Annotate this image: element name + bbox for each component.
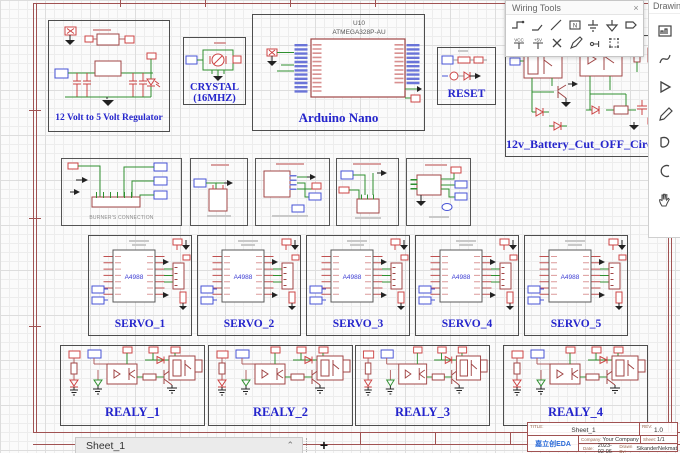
title-label: TITLE:	[530, 424, 544, 429]
pen-icon[interactable]	[567, 34, 584, 51]
easyeda-logo: 嘉立创EDA	[528, 436, 579, 452]
frame-tick	[375, 0, 376, 7]
section-label: SERVO_5	[525, 318, 627, 330]
relay-schematic-drawing	[209, 346, 351, 404]
section-servo-4[interactable]: A4988 SERVO_4	[415, 235, 519, 336]
relay-schematic-drawing	[356, 346, 488, 404]
bezier-curve-icon[interactable]	[656, 50, 674, 68]
section-sensor-module-3[interactable]	[406, 158, 471, 226]
add-sheet-button[interactable]: +	[312, 437, 336, 453]
section-label: Arduino Nano	[253, 111, 424, 125]
relay-schematic-drawing	[61, 346, 203, 404]
drawing-tools-panel[interactable]: Drawing Tools	[648, 0, 680, 238]
section-relay-4[interactable]: REALY_4	[503, 345, 648, 426]
section-servo-1[interactable]: A4988 SERVO_1	[88, 235, 192, 336]
no-connect-icon[interactable]	[548, 34, 565, 51]
frame-tick	[29, 326, 41, 327]
pan-hand-icon[interactable]	[656, 190, 674, 208]
section-servo-2[interactable]: A4988 SERVO_2	[197, 235, 301, 336]
drawn-by-label: Drawn By:	[617, 443, 633, 453]
arduino-schematic-drawing: U10 ATMEGA328P-AU	[253, 15, 422, 107]
frame-tick	[29, 110, 41, 111]
frame-tick	[360, 432, 361, 445]
date-value: 2023-02-06	[598, 442, 615, 453]
sensor-module-2-drawing	[337, 159, 396, 221]
frame-tick	[205, 0, 206, 7]
closed-shape-icon[interactable]	[656, 134, 674, 152]
sheet-tab-label[interactable]: Sheet_1	[76, 440, 286, 452]
section-relay-1[interactable]: REALY_1	[60, 345, 205, 426]
driver-chip-label: A4988	[452, 274, 471, 281]
section-label: REALY_3	[356, 406, 489, 420]
sensor-module-1-drawing	[256, 159, 327, 221]
wire-icon[interactable]	[510, 16, 527, 33]
section-reset[interactable]: RESET	[437, 47, 496, 105]
signal-ground-icon[interactable]	[604, 16, 621, 33]
servo-schematic-drawing: A4988	[416, 236, 517, 316]
chevron-up-icon[interactable]: ⌃	[286, 440, 302, 451]
section-label: 12v_Battery_Cut_OFF_Circuit	[506, 138, 660, 151]
driver-chip-label: A4988	[234, 274, 253, 281]
section-label: RESET	[438, 88, 495, 100]
servo-schematic-drawing: A4988	[89, 236, 190, 316]
section-burners-connection[interactable]: BURNER'S CONNECTION	[61, 158, 182, 226]
section-servo-5[interactable]: A4988 SERVO_5	[524, 235, 628, 336]
pencil-icon[interactable]	[656, 106, 674, 124]
vcc-flag-icon[interactable]: VCC	[510, 34, 527, 51]
section-relay-2[interactable]: REALY_2	[208, 345, 353, 426]
drawn-by-value: SikanderNekmat	[636, 445, 677, 452]
section-label: REALY_1	[61, 406, 204, 420]
svg-text:+5V: +5V	[533, 37, 541, 42]
section-label: REALY_2	[209, 406, 352, 420]
relay-schematic-drawing	[504, 346, 646, 404]
sheet-tab[interactable]: Sheet_1 ⌃	[75, 437, 303, 453]
frame-tick	[510, 432, 511, 445]
wire-group-icon[interactable]	[605, 34, 622, 51]
title-block-rev-cell: REV: 1.0	[639, 423, 677, 435]
frame-tick	[435, 432, 436, 445]
section-sensor-module-1[interactable]	[255, 158, 330, 226]
section-label: SERVO_2	[198, 318, 300, 330]
wiring-tools-header[interactable]: Wiring Tools ×	[506, 1, 643, 15]
wiring-tools-title: Wiring Tools	[506, 3, 629, 13]
regulator-schematic-drawing	[49, 21, 168, 109]
driver-chip-label: A4988	[125, 274, 144, 281]
servo-schematic-drawing: A4988	[307, 236, 408, 316]
net-port-icon[interactable]	[622, 16, 639, 33]
frame-tick	[120, 0, 121, 7]
section-crystal[interactable]: CRYSTAL (16MHZ)	[183, 37, 246, 105]
crystal-label-line1: CRYSTAL	[190, 82, 239, 93]
drawing-tools-title: Drawing Tools	[649, 0, 680, 14]
line-icon[interactable]	[547, 16, 564, 33]
section-battery-connector[interactable]	[190, 158, 248, 226]
net-label-icon[interactable]: N	[566, 16, 583, 33]
section-label: SERVO_4	[416, 318, 518, 330]
title-block[interactable]: TITLE: Sheet_1 REV: 1.0 嘉立创EDA Company: …	[527, 422, 678, 452]
section-label: REALY_4	[504, 406, 647, 420]
section-label: CRYSTAL (16MHZ)	[184, 82, 245, 105]
driver-chip-label: A4988	[561, 274, 580, 281]
wiring-tools-palette[interactable]: Wiring Tools × N VCC +5V	[505, 0, 644, 57]
section-label: SERVO_3	[307, 318, 409, 330]
rev-label: REV:	[642, 424, 652, 429]
ground-icon[interactable]	[585, 16, 602, 33]
sheet-value: 1/1	[657, 436, 665, 443]
servo-schematic-drawing: A4988	[198, 236, 299, 316]
svg-text:VCC: VCC	[514, 37, 524, 42]
chip-part-number: ATMEGA328P-AU	[332, 29, 386, 36]
plus5v-flag-icon[interactable]: +5V	[529, 34, 546, 51]
sheet-count-cell: Sheet: 1/1	[640, 436, 677, 443]
section-voltage-regulator[interactable]: 12 Volt to 5 Volt Regulator	[48, 20, 170, 132]
section-sensor-module-2[interactable]	[336, 158, 399, 226]
section-label: 12 Volt to 5 Volt Regulator	[49, 113, 169, 123]
section-arduino-nano[interactable]: U10 ATMEGA328P-AU Arduino Nano	[252, 14, 425, 131]
chip-refdes: U10	[353, 20, 365, 27]
arrow-icon[interactable]	[656, 78, 674, 96]
burners-schematic-drawing	[62, 159, 180, 211]
servo-schematic-drawing: A4988	[525, 236, 626, 316]
date-label: Date:	[581, 445, 595, 451]
schematic-canvas[interactable]: 12 Volt to 5 Volt Regulator CRYSTAL (16M…	[0, 0, 680, 453]
sensor-module-3-drawing	[407, 159, 468, 221]
battery-connector-drawing	[191, 159, 245, 221]
crystal-schematic-drawing	[184, 38, 243, 82]
burners-caption: BURNER'S CONNECTION	[62, 215, 181, 221]
close-icon[interactable]: ×	[629, 3, 643, 13]
frame-tick	[29, 218, 41, 219]
reset-schematic-drawing	[438, 48, 493, 88]
frame-tick	[290, 0, 291, 7]
bus-icon[interactable]	[529, 16, 546, 33]
section-label: SERVO_1	[89, 318, 191, 330]
image-icon[interactable]	[656, 22, 674, 40]
svg-text:N: N	[572, 23, 576, 29]
tab-separator	[306, 438, 307, 452]
section-servo-3[interactable]: A4988 SERVO_3	[306, 235, 410, 336]
section-relay-3[interactable]: REALY_3	[355, 345, 490, 426]
voltage-probe-icon[interactable]	[586, 34, 603, 51]
title-value: Sheet_1	[528, 423, 639, 434]
crystal-label-line2: (16MHZ)	[193, 93, 236, 104]
sheet-label: Sheet:	[641, 436, 657, 443]
arc-icon[interactable]	[656, 162, 674, 180]
driver-chip-label: A4988	[343, 274, 362, 281]
title-block-title-cell: TITLE: Sheet_1	[528, 423, 639, 435]
